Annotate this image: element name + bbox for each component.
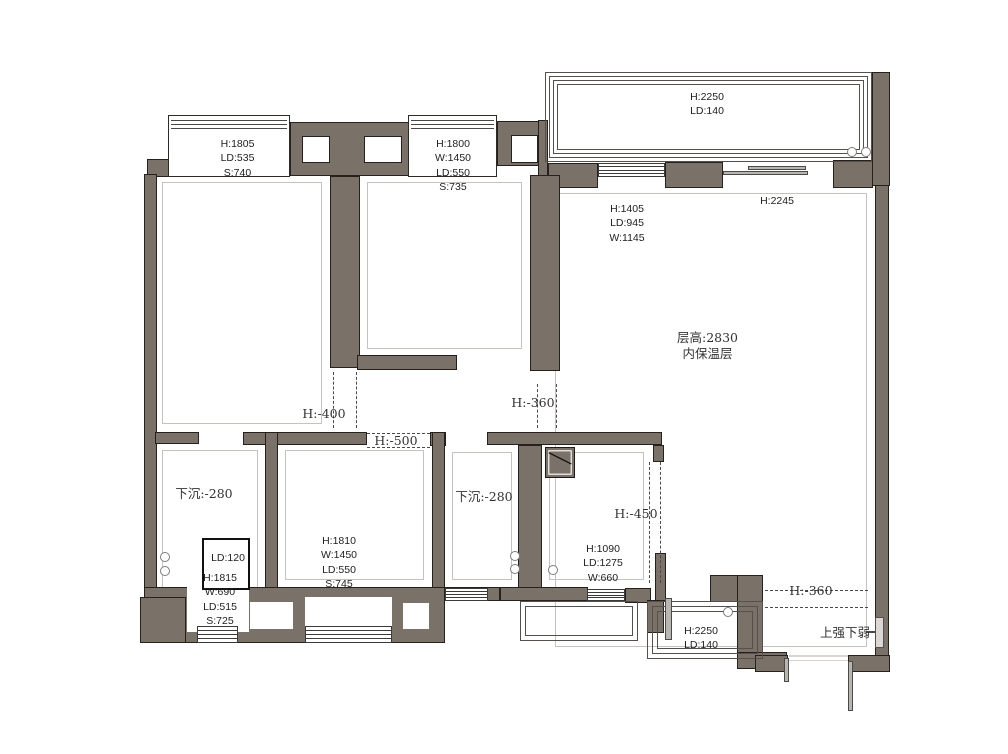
window-glazing-line: [588, 592, 624, 593]
window-glazing-line: [446, 597, 487, 598]
door-stop-circle: [510, 564, 520, 574]
door-leaf: [723, 171, 808, 175]
door-stop-circle: [548, 565, 558, 575]
window-sill-line: [171, 128, 287, 129]
wall-segment: [432, 432, 445, 598]
wall-segment: [653, 445, 664, 462]
window-glazing-line: [306, 630, 391, 631]
dimension-label: H:-360: [775, 583, 847, 599]
door-stop-circle: [510, 551, 520, 561]
window: [305, 626, 392, 643]
flue-symbol: [546, 448, 574, 477]
wall-segment: [872, 72, 890, 186]
door-stop-circle: [160, 566, 170, 576]
door-threshold: [789, 655, 848, 657]
door-stop-circle: [847, 147, 857, 157]
wall-opening: [403, 603, 429, 629]
beam-dashed-line: [765, 607, 868, 608]
window-glazing-line: [599, 173, 664, 174]
wall-segment: [710, 575, 738, 602]
window-glazing-line: [599, 166, 664, 167]
dimension-label: H:2250 LD:140: [660, 624, 742, 653]
wall-niche: [302, 136, 330, 163]
wall-segment: [500, 587, 588, 601]
window-sill-line: [171, 124, 287, 125]
dimension-label: 下沉:-280: [148, 486, 260, 502]
window-sill-line: [171, 120, 287, 121]
wall-segment: [487, 432, 662, 445]
door-threshold: [789, 660, 848, 661]
dimension-label: H:-500: [360, 433, 432, 449]
wall-segment: [665, 162, 723, 188]
wall-segment: [155, 432, 199, 444]
dimension-label: H:1805 LD:535 S:740: [185, 137, 290, 180]
dimension-label: H:2245: [727, 194, 827, 208]
dimension-label: H:-450: [600, 506, 672, 522]
room-inner-outline: [452, 452, 512, 580]
door-stop-circle: [723, 607, 733, 617]
window-glazing-line: [198, 630, 237, 631]
dimension-label: 上强下弱: [816, 625, 874, 641]
window-sill-line: [411, 124, 494, 125]
wall-segment: [243, 432, 367, 445]
floor-plan: H:1805 LD:535 S:740H:1800 W:1450 LD:550 …: [0, 0, 1008, 754]
dimension-label: H:1800 W:1450 LD:550 S:735: [403, 137, 503, 195]
wall-niche: [511, 135, 538, 163]
beam-dashed-line: [649, 462, 650, 583]
window-glazing-line: [198, 638, 237, 639]
dimension-label: H:1810 W:1450 LD:550 S:745: [293, 534, 385, 592]
dimension-label: H:2250 LD:140: [657, 90, 757, 119]
wall-segment: [530, 175, 560, 371]
window-glazing-line: [588, 595, 624, 596]
dimension-label: 下沉:-280: [428, 489, 540, 505]
window-glazing-line: [599, 170, 664, 171]
window-glazing-line: [588, 597, 624, 598]
window-sill-line: [411, 120, 494, 121]
electrical-panel: [875, 617, 884, 648]
flue-shaft: [545, 447, 575, 478]
room-inner-outline: [367, 182, 522, 349]
dimension-label: H:1090 LD:1275 W:660: [562, 542, 644, 585]
wall-segment: [330, 176, 360, 368]
dimension-label: H:-360: [498, 395, 568, 411]
wall-segment: [833, 160, 873, 188]
window: [587, 589, 625, 601]
window: [598, 163, 665, 177]
beam-dashed-line: [660, 462, 661, 583]
dimension-label: 层高:2830 内保温层: [650, 330, 765, 361]
wall-segment: [875, 185, 889, 669]
dimension-label: H:-400: [288, 406, 360, 422]
dimension-label: H:1405 LD:945 W:1145: [577, 202, 677, 245]
wall-segment: [265, 432, 278, 598]
window-glazing-line: [446, 594, 487, 595]
wall-segment: [357, 355, 457, 370]
window-glazing-line: [306, 634, 391, 635]
wall-opening: [305, 597, 392, 626]
wall-segment: [144, 174, 157, 600]
door-stop-circle: [160, 552, 170, 562]
railing-line: [525, 606, 633, 636]
window: [445, 588, 488, 601]
window-sill-line: [411, 128, 494, 129]
window-glazing-line: [306, 638, 391, 639]
dimension-label: LD:120: [196, 551, 260, 565]
wall-segment: [848, 655, 890, 672]
dimension-label: H:1815 W:690 LD:515 S:725: [180, 571, 260, 629]
room-inner-outline: [162, 182, 322, 424]
door-leaf: [848, 661, 853, 711]
wall-segment: [518, 445, 542, 588]
wall-niche: [364, 136, 402, 163]
door-stop-circle: [861, 147, 871, 157]
door-leaf: [748, 166, 806, 170]
window-glazing-line: [446, 591, 487, 592]
window-glazing-line: [198, 634, 237, 635]
door-leaf: [784, 658, 789, 682]
